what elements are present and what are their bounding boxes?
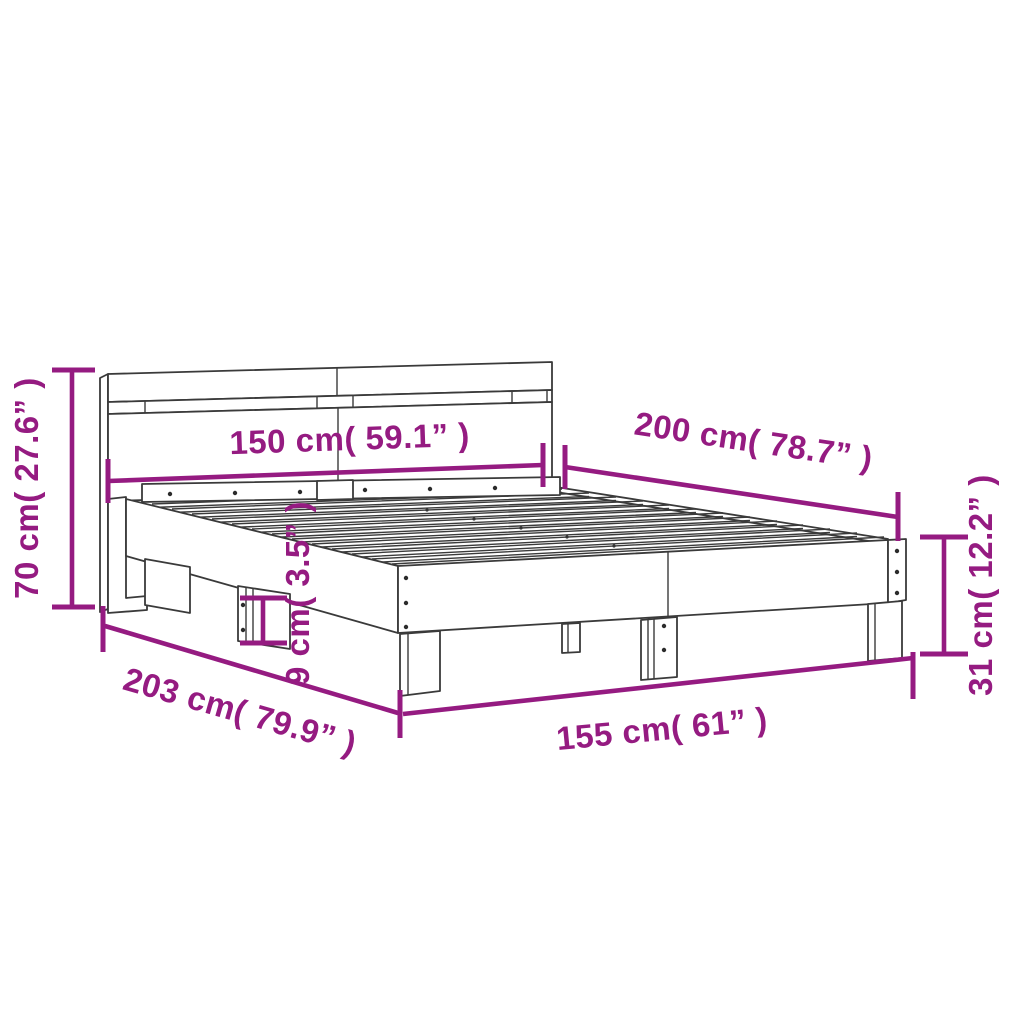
diagram-canvas: 70 cm( 27.6” ) 150 cm( 59.1” ) 200 cm( 7… [0, 0, 1024, 1024]
dimension-label-total-length: 203 cm( 79.9” ) [119, 660, 360, 762]
dimension-line-headboard-height [52, 370, 95, 607]
dimension-line-frame-height [920, 537, 968, 654]
dimension-label-headboard-height: 70 cm( 27.6” ) [8, 377, 45, 599]
dimension-label-rail-thickness: 9 cm( 3.5” ) [279, 501, 316, 685]
dimension-label-frame-height: 31 cm( 12.2” ) [962, 474, 999, 696]
dimension-label-bed-length: 200 cm( 78.7” ) [632, 405, 875, 477]
bed-frame-diagram: 70 cm( 27.6” ) 150 cm( 59.1” ) 200 cm( 7… [0, 0, 1024, 1024]
dimension-label-total-width: 155 cm( 61” ) [555, 700, 770, 757]
